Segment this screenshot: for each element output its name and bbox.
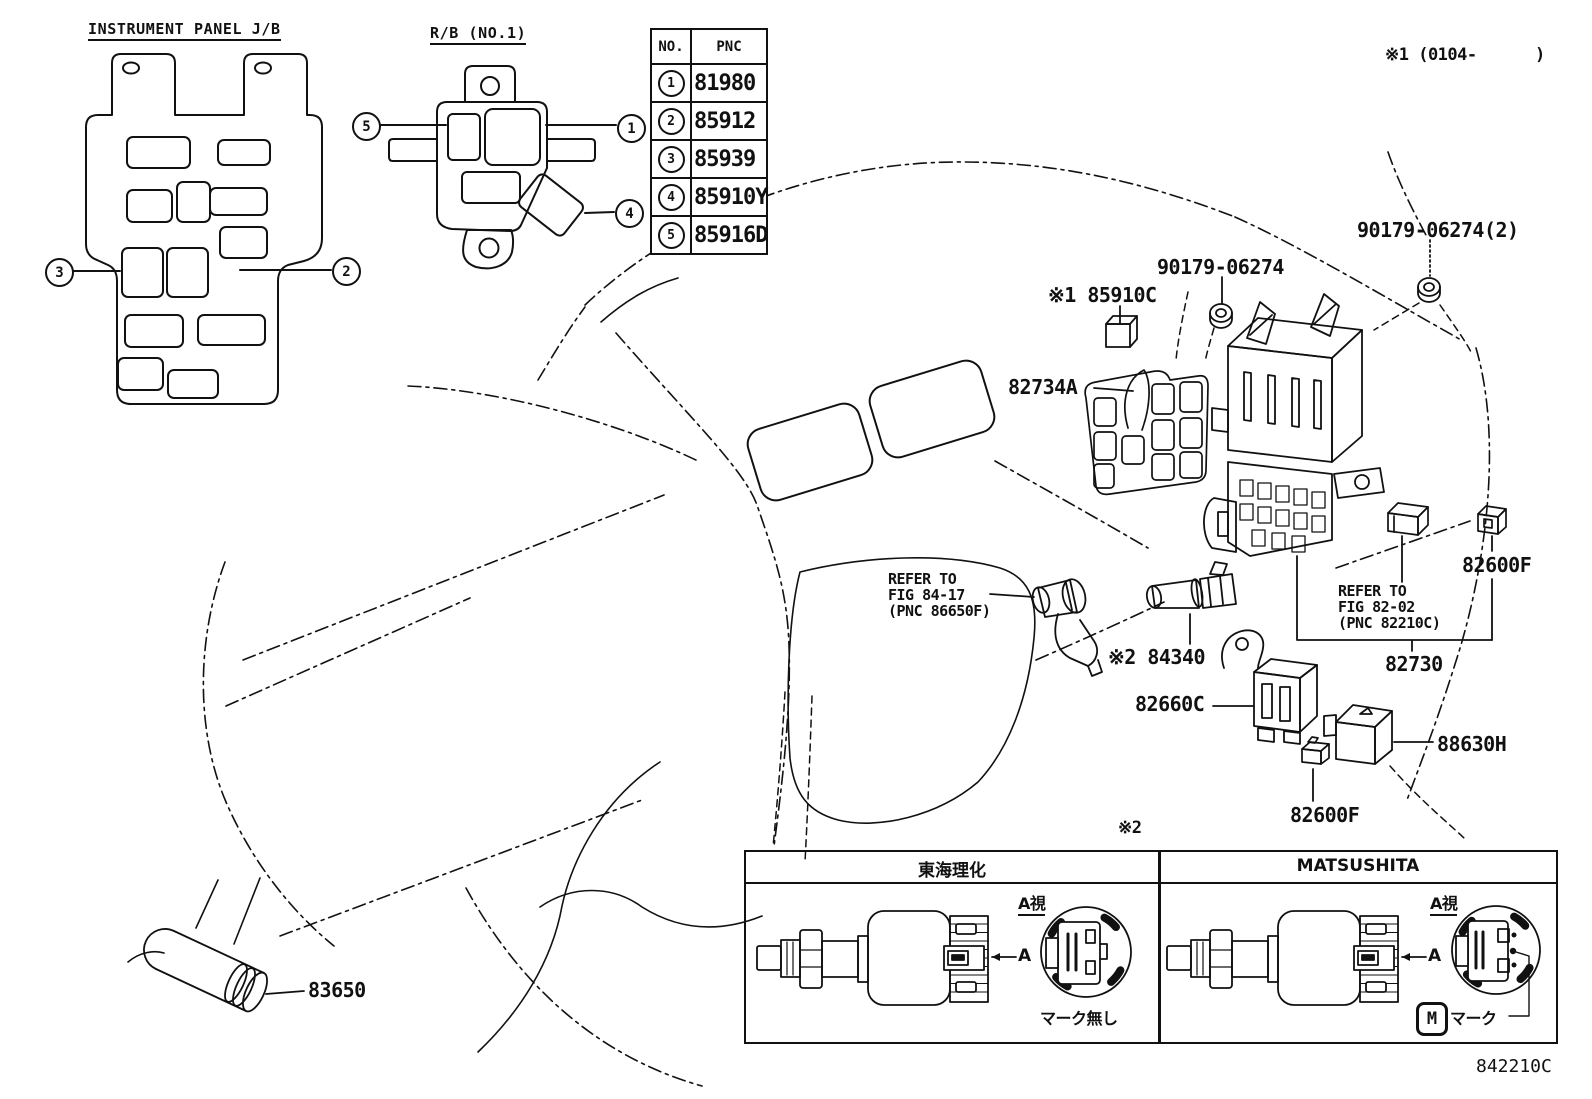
arrow-a-left: A xyxy=(1018,946,1031,966)
comparison-labels: A視 A視 A A マーク無し マーク M xyxy=(0,0,1592,1099)
parts-diagram-page: INSTRUMENT PANEL J/B R/B (NO.1) ※1 (0104… xyxy=(0,0,1592,1099)
matsushita-logo: M xyxy=(1416,1002,1448,1036)
view-a-label-right: A視 xyxy=(1430,890,1457,916)
arrow-a-right: A xyxy=(1428,946,1441,966)
no-mark-label: マーク無し xyxy=(1040,1005,1118,1029)
mark-label: マーク xyxy=(1450,1005,1497,1029)
view-a-label-left: A視 xyxy=(1018,890,1045,916)
